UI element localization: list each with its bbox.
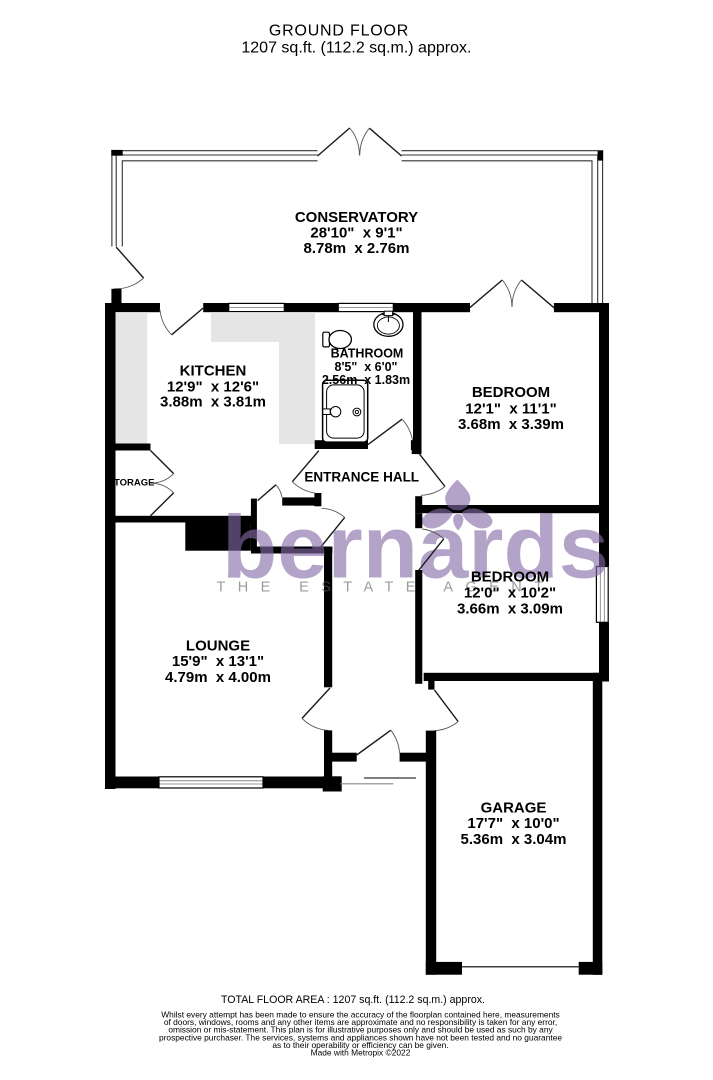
- svg-text:TORAGE: TORAGE: [114, 478, 154, 489]
- svg-text:1207 sq.ft. (112.2 sq.m.) appr: 1207 sq.ft. (112.2 sq.m.) approx.: [241, 40, 471, 57]
- svg-text:3.88m x 3.81m: 3.88m x 3.81m: [160, 394, 266, 411]
- svg-text:Made with Metropix ©2022: Made with Metropix ©2022: [311, 1048, 411, 1058]
- svg-text:3.68m x 3.39m: 3.68m x 3.39m: [458, 416, 564, 433]
- svg-text:GROUND FLOOR: GROUND FLOOR: [269, 23, 409, 40]
- svg-text:2.56m x 1.83m: 2.56m x 1.83m: [322, 373, 410, 387]
- svg-text:12'1" x 11'1": 12'1" x 11'1": [465, 400, 556, 417]
- svg-text:3.66m x 3.09m: 3.66m x 3.09m: [457, 600, 563, 617]
- svg-text:17'7" x 10'0": 17'7" x 10'0": [467, 815, 559, 832]
- svg-text:15'9" x 13'1": 15'9" x 13'1": [172, 653, 264, 670]
- svg-text:KITCHEN: KITCHEN: [180, 363, 247, 380]
- svg-text:BEDROOM: BEDROOM: [472, 384, 550, 401]
- svg-text:BEDROOM: BEDROOM: [471, 568, 549, 585]
- svg-text:ENTRANCE HALL: ENTRANCE HALL: [304, 470, 419, 485]
- svg-text:8'5" x 6'0": 8'5" x 6'0": [335, 360, 398, 374]
- svg-text:BATHROOM: BATHROOM: [331, 347, 404, 361]
- svg-text:GARAGE: GARAGE: [481, 800, 547, 817]
- svg-text:5.36m x 3.04m: 5.36m x 3.04m: [461, 831, 567, 848]
- svg-text:TOTAL FLOOR AREA : 1207 sq.ft.: TOTAL FLOOR AREA : 1207 sq.ft. (112.2 sq…: [221, 994, 485, 1006]
- svg-text:12'0" x 10'2": 12'0" x 10'2": [464, 584, 556, 601]
- svg-text:8.78m x 2.76m: 8.78m x 2.76m: [304, 240, 410, 257]
- svg-text:4.79m x 4.00m: 4.79m x 4.00m: [165, 669, 271, 686]
